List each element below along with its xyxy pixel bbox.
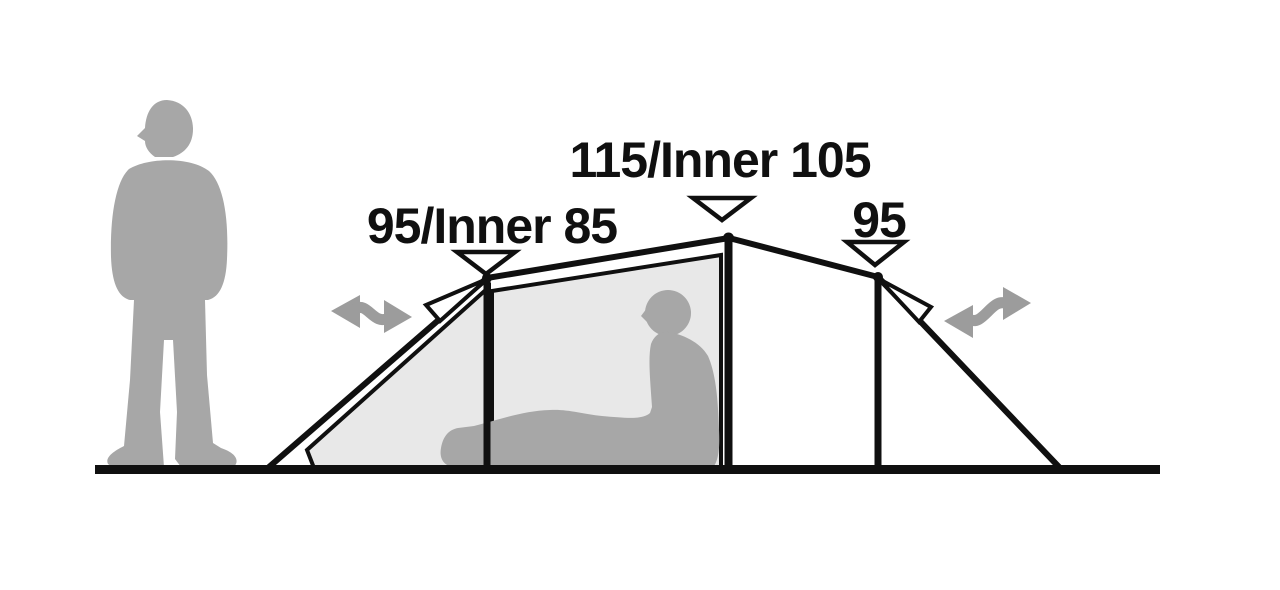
front-height-label: 95/Inner 85 — [367, 198, 617, 254]
rear-height-label: 95 — [852, 192, 906, 248]
rear-pole-tip — [873, 272, 883, 282]
main-pole — [725, 236, 733, 469]
rear-pole — [875, 276, 882, 469]
middle-height-label: 115/Inner 105 — [569, 132, 870, 188]
front-pole — [484, 276, 491, 469]
tent-dimensions-diagram: 95/Inner 85 115/Inner 105 95 — [0, 0, 1280, 590]
main-pole-tip — [723, 233, 734, 244]
diagram-canvas: 95/Inner 85 115/Inner 105 95 — [0, 0, 1280, 590]
ground-line — [95, 465, 1160, 474]
scale-person-torso — [111, 160, 227, 300]
